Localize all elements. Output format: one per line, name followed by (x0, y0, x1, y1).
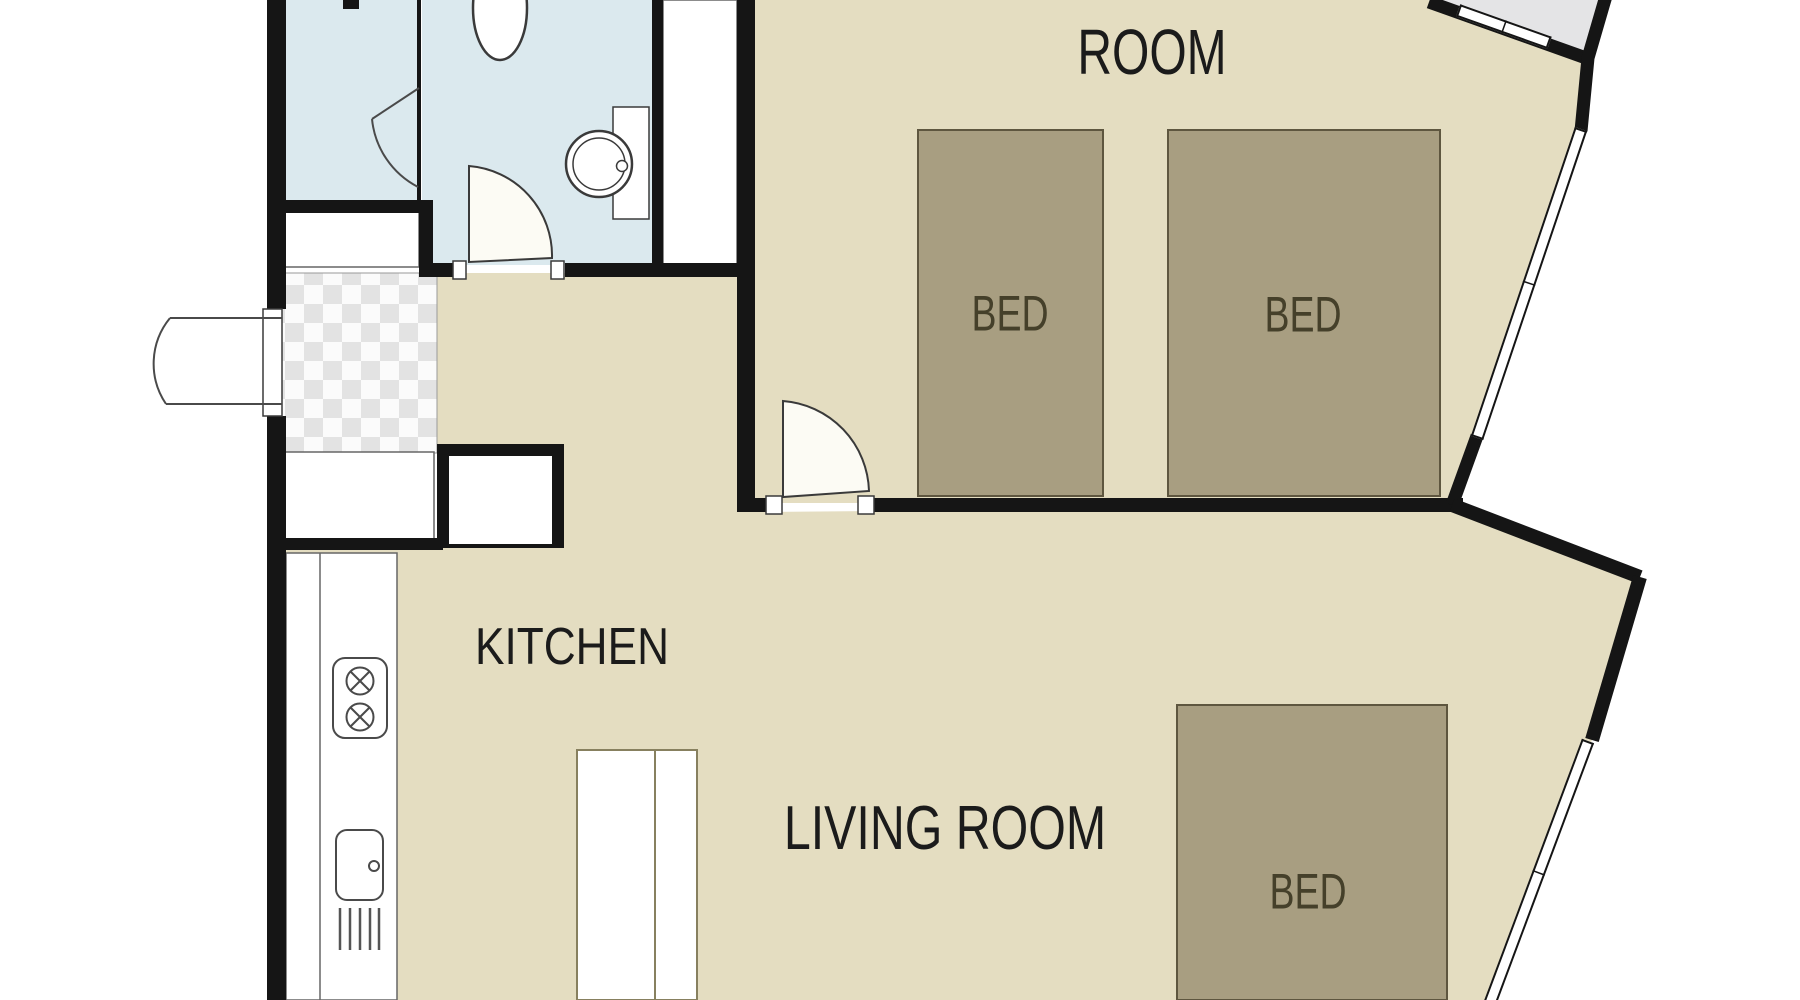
left-outer-wall-lower (267, 416, 286, 1000)
hall-closet (663, 0, 737, 265)
room-living-wall-left (737, 498, 768, 512)
bathroom-faucet-icon (617, 161, 628, 172)
entry-upper-closet (282, 210, 419, 267)
bed-3-label: BED (1269, 864, 1346, 919)
bedroom-west-wall (737, 0, 755, 512)
entrance-door (154, 309, 282, 416)
left-outer-wall-upper (267, 0, 286, 309)
entry-closet-south-wall (267, 538, 443, 550)
kitchen-island (577, 750, 697, 1000)
toilet-door-jamb (453, 261, 466, 279)
toilet-south-wall-left (423, 263, 455, 277)
floor-plan-page: BED BED BED (0, 0, 1800, 1000)
bed-2-label: BED (1264, 287, 1341, 342)
bedroom-door-jamb (858, 496, 874, 514)
entry-floor-checker (282, 273, 437, 453)
bed-1: BED (918, 130, 1103, 496)
entry-lower-closet (282, 452, 434, 540)
storage-nook-interior (449, 456, 552, 544)
bedroom-door-jamb (766, 496, 782, 514)
room-living-wall-right (873, 498, 1463, 512)
kitchen-faucet-icon (369, 861, 379, 871)
shower-divider-wall (417, 0, 421, 200)
shower-room-floor (282, 0, 418, 200)
kitchen-label: KITCHEN (475, 618, 669, 676)
bedroom-label: ROOM (1077, 16, 1226, 87)
entrance-door-arc (154, 318, 170, 404)
bed-1-label: BED (971, 286, 1048, 341)
bathroom-south-wall (267, 200, 423, 213)
toilet-door-jamb (551, 261, 564, 279)
small-wall-stub (343, 0, 359, 9)
kitchen-counter (286, 553, 397, 1000)
floor-plan: BED BED BED (0, 0, 1800, 1000)
bed-2: BED (1168, 130, 1440, 496)
entrance-door-jamb (263, 309, 282, 416)
toilet-south-wall-right (565, 263, 755, 277)
bed-3: BED (1177, 705, 1447, 1000)
living-room-label: LIVING ROOM (784, 793, 1106, 862)
closet-thin-wall (652, 0, 663, 265)
